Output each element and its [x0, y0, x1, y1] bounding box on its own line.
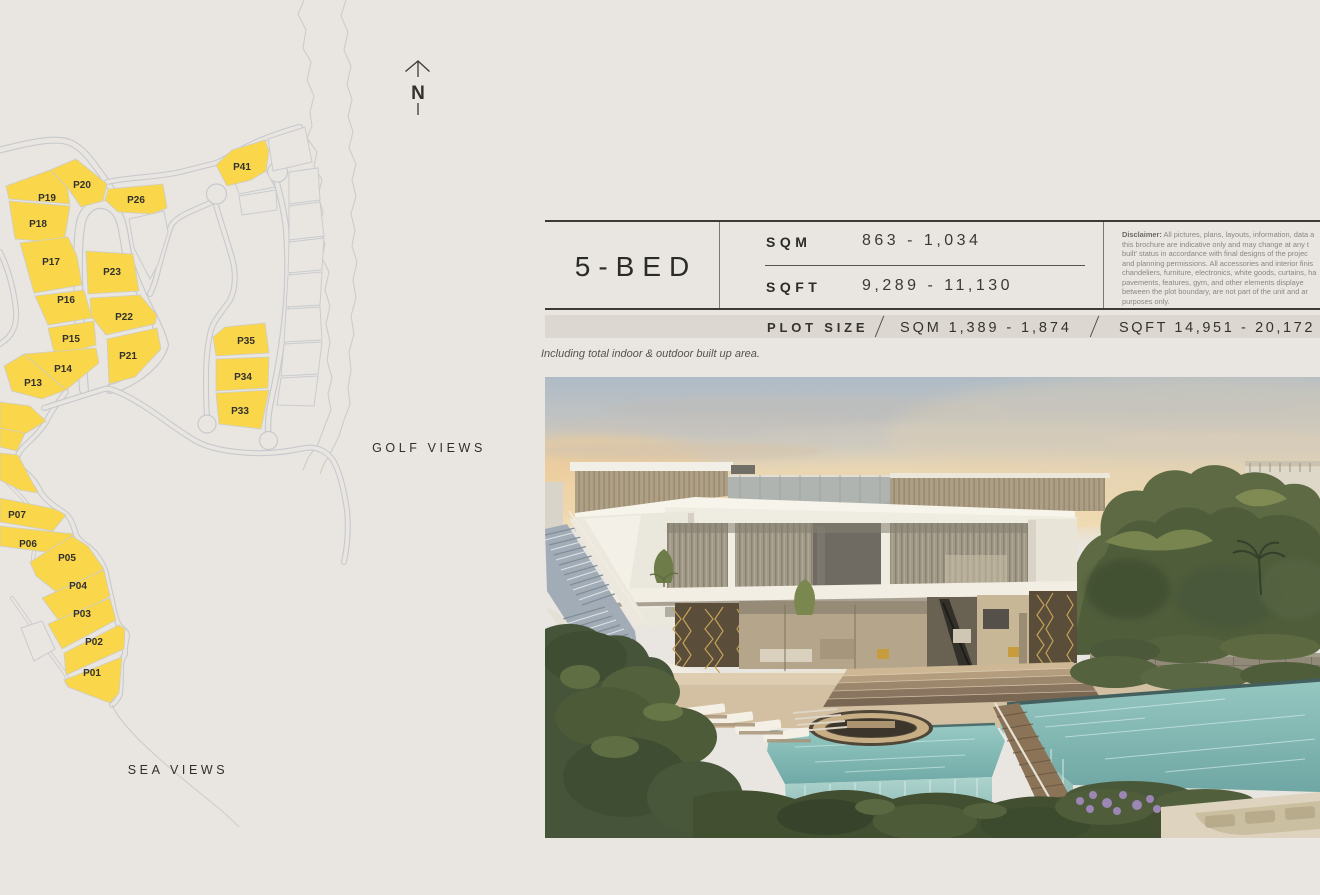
svg-text:P22: P22 [115, 312, 133, 323]
svg-text:P41: P41 [233, 162, 251, 173]
svg-text:P21: P21 [119, 351, 137, 362]
svg-text:N: N [411, 83, 425, 104]
svg-text:P05: P05 [58, 553, 76, 564]
svg-text:P16: P16 [57, 295, 75, 306]
svg-text:P06: P06 [19, 539, 37, 550]
svg-text:P07: P07 [8, 510, 26, 521]
svg-text:P04: P04 [69, 581, 87, 592]
svg-text:SEA VIEWS: SEA VIEWS [128, 763, 228, 777]
svg-text:P19: P19 [38, 193, 56, 204]
svg-text:P23: P23 [103, 267, 121, 278]
svg-text:P20: P20 [73, 180, 91, 191]
svg-text:P03: P03 [73, 609, 91, 620]
svg-text:P17: P17 [42, 257, 60, 268]
svg-text:P34: P34 [234, 372, 252, 383]
svg-text:P14: P14 [54, 364, 72, 375]
svg-text:P26: P26 [127, 195, 145, 206]
svg-text:P02: P02 [85, 637, 103, 648]
svg-text:P01: P01 [83, 668, 101, 679]
svg-text:P18: P18 [29, 219, 47, 230]
svg-text:P13: P13 [24, 378, 42, 389]
svg-text:P35: P35 [237, 336, 255, 347]
svg-text:GOLF VIEWS: GOLF VIEWS [372, 441, 486, 455]
svg-text:P15: P15 [62, 334, 80, 345]
svg-text:P33: P33 [231, 406, 249, 417]
